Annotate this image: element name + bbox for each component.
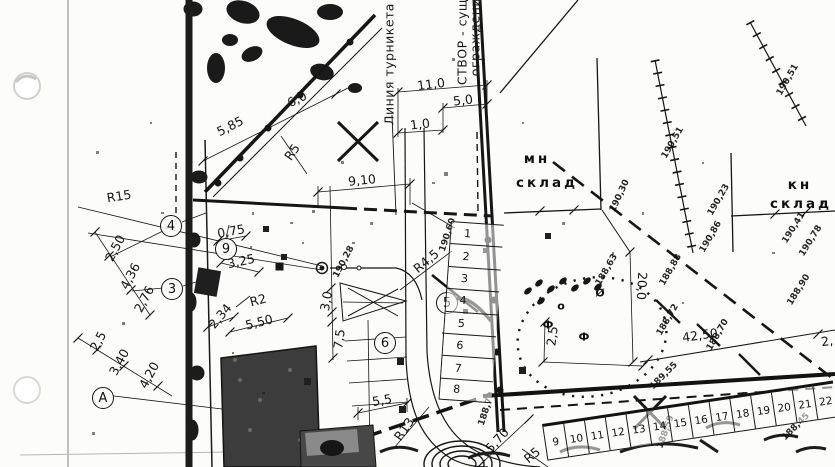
plan-linework [0,0,835,467]
curved-road-entry [276,263,422,301]
boundary-ticked-lines [655,22,806,253]
planting-grid [330,186,409,462]
stall-number: 8 [440,377,493,403]
paper-frame [20,0,232,467]
top-buildings [207,0,362,93]
main-horizontal-road [193,200,492,228]
stall-number: 22 [812,384,835,420]
bottom-buildings [221,346,376,467]
site-plan-scan: Линия турникетаСТВОР - сущограждение мнс… [0,0,835,467]
hatched-triangle [340,283,406,321]
punch-holes [14,73,40,403]
